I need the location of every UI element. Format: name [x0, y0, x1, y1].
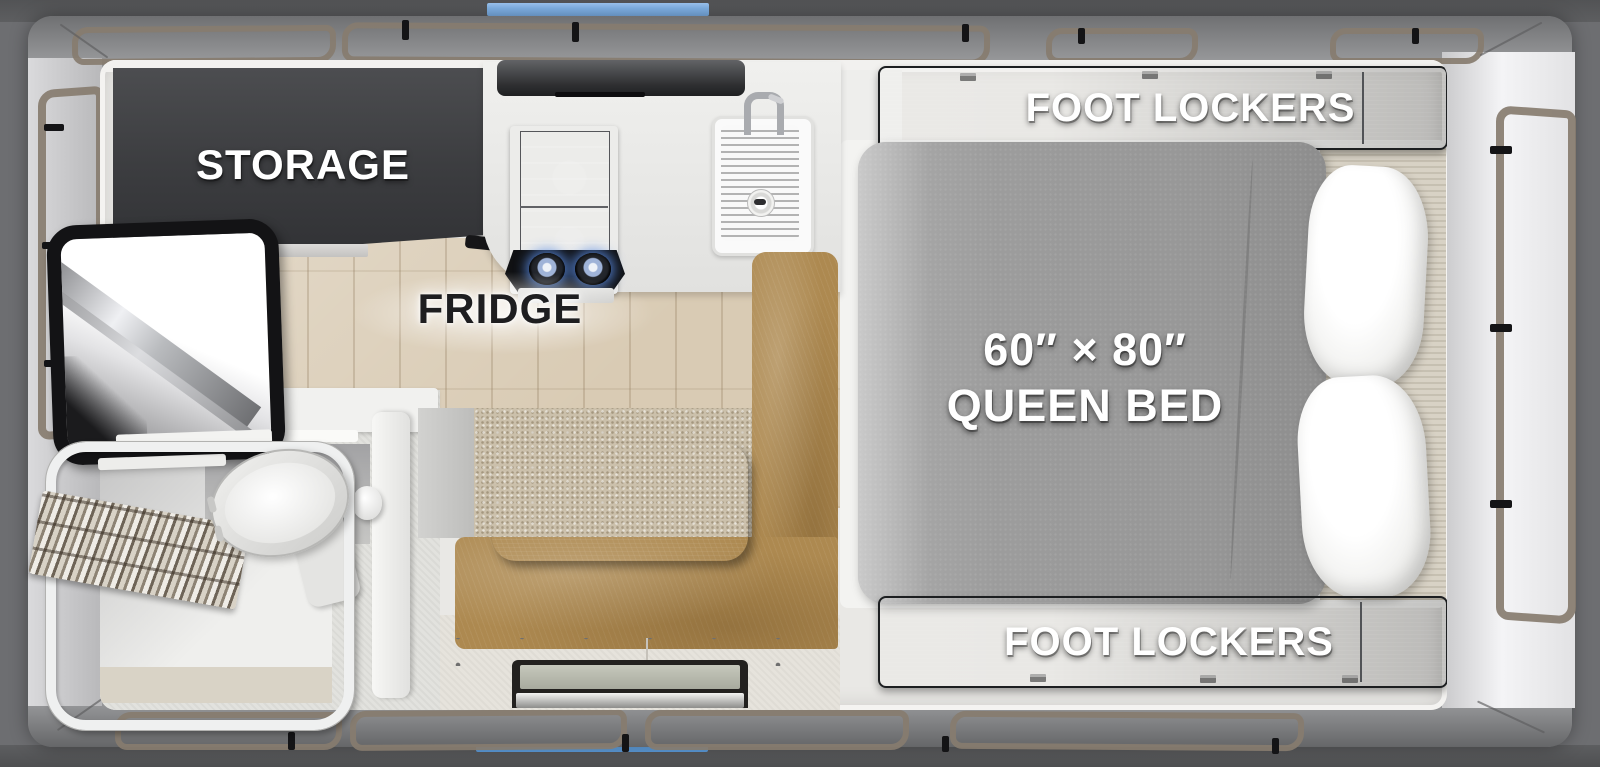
- mount-tick: [1078, 28, 1085, 44]
- locker-hinge: [960, 73, 976, 81]
- locker-hinge: [1316, 71, 1332, 79]
- sink-drain-icon: [747, 189, 775, 217]
- fridge-label: FRIDGE: [350, 282, 650, 336]
- foot-lockers-bottom: FOOT LOCKERS: [878, 596, 1447, 688]
- storage-label: STORAGE: [138, 140, 468, 190]
- awning-trim: [1330, 28, 1484, 64]
- locker-hinge: [1030, 674, 1046, 682]
- range-hood: [497, 60, 745, 96]
- mount-tick: [402, 20, 409, 40]
- mount-tick: [1490, 500, 1512, 508]
- locker-seam: [1362, 72, 1364, 144]
- entry-window: [46, 218, 286, 466]
- bed-label: 60″ × 80″ QUEEN BED: [870, 322, 1300, 434]
- locker-hinge: [1142, 71, 1158, 79]
- bath-partition-wall: [372, 412, 410, 698]
- foot-lockers-top: FOOT LOCKERS: [878, 66, 1447, 150]
- pillow: [1294, 373, 1433, 601]
- locker-seam: [1360, 602, 1362, 682]
- mount-tick: [622, 734, 629, 752]
- entry-threshold: [516, 693, 744, 708]
- mount-tick: [1272, 738, 1279, 754]
- mount-tick: [44, 124, 64, 131]
- awning-trim: [350, 709, 627, 751]
- mount-tick: [1490, 324, 1512, 332]
- mount-tick: [1490, 146, 1512, 154]
- mount-tick: [572, 22, 579, 42]
- entry-stairwell-pan: [520, 665, 740, 689]
- foot-lockers-bottom-label: FOOT LOCKERS: [992, 620, 1334, 665]
- locker-hinge: [1200, 675, 1216, 683]
- mount-tick: [288, 732, 295, 750]
- mount-tick: [1412, 28, 1419, 44]
- bed-name-label: QUEEN BED: [870, 378, 1300, 434]
- mount-tick: [962, 24, 969, 42]
- dinette-end-panel: [418, 408, 474, 538]
- mount-tick: [942, 736, 949, 752]
- awning-trim: [950, 711, 1304, 751]
- fridge-door-divider: [520, 206, 608, 208]
- kitchen-sink: [712, 116, 814, 256]
- bath-handle: [352, 486, 382, 520]
- awning-trim: [1046, 28, 1198, 64]
- roof-accent-strip-top: [487, 3, 709, 16]
- bed-size-label: 60″ × 80″: [870, 322, 1300, 378]
- foot-lockers-top-label: FOOT LOCKERS: [971, 86, 1356, 131]
- sink-drainboard: [721, 125, 799, 241]
- awning-trim: [645, 710, 909, 750]
- awning-trim-right: [1496, 105, 1576, 625]
- range-hood-handle: [555, 92, 645, 97]
- locker-hinge: [1342, 675, 1358, 683]
- entry-stairwell: [512, 660, 748, 708]
- pillow: [1300, 163, 1431, 389]
- toilet-lid: [216, 452, 344, 555]
- dinette-table: [492, 443, 748, 561]
- camper-floorplan: STORAGE FRIDGE: [0, 0, 1600, 767]
